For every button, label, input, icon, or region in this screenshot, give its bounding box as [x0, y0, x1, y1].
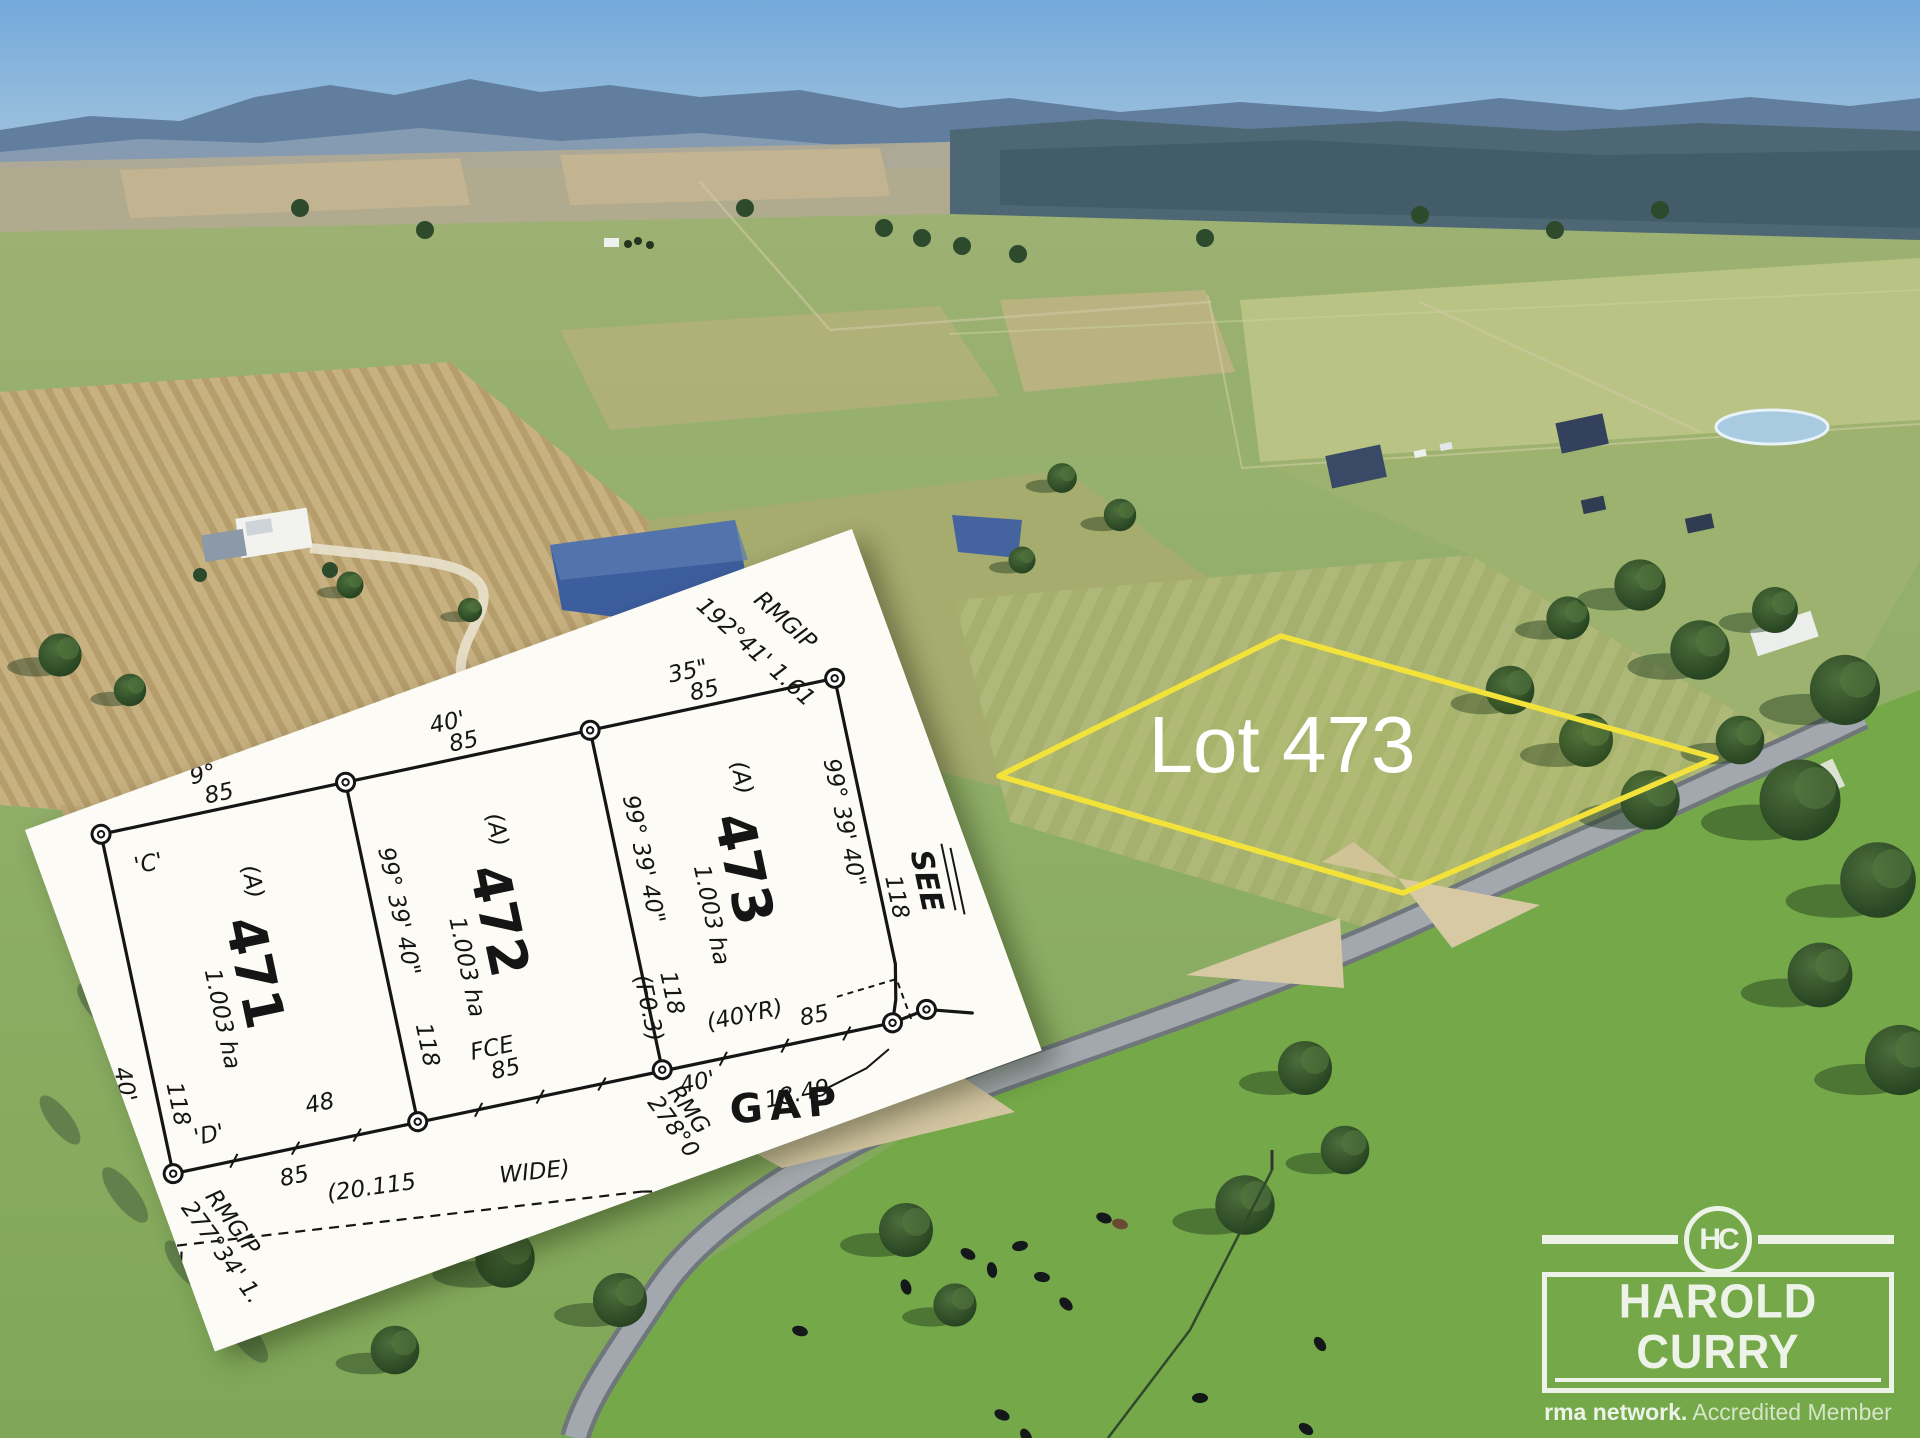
lot-code: (A) — [236, 863, 268, 901]
plan-length: 85 — [202, 778, 236, 810]
survey-mark — [163, 1163, 184, 1184]
plan-depth: 118 — [161, 1080, 196, 1128]
survey-mark — [90, 824, 111, 845]
tagline-member: Accredited Member — [1692, 1399, 1891, 1425]
logo-tagline: rma network. Accredited Member — [1542, 1399, 1894, 1426]
plan-road-width: (20.115 — [325, 1169, 417, 1207]
lot-code: (A) — [481, 811, 513, 849]
plan-road-width: WIDE) — [498, 1156, 571, 1189]
plan-corner-d: 'D' — [192, 1119, 227, 1151]
lot-note: 48 — [303, 1088, 337, 1120]
logo-namebox: HAROLD CURRY — [1542, 1272, 1894, 1394]
survey-mark — [579, 720, 600, 741]
plan-side-bearing: 99° 39' 40" — [818, 756, 871, 889]
lot-note: (40YR) — [704, 995, 785, 1036]
plan-length: 85 — [277, 1161, 311, 1193]
tagline-network: rma network. — [1544, 1399, 1687, 1425]
plan-length: 85 — [687, 675, 721, 707]
plan-depth: 118 — [410, 1021, 445, 1069]
hc-monogram-icon: HC — [1684, 1206, 1752, 1274]
survey-mark — [652, 1059, 673, 1080]
lot-note: 85 — [797, 1000, 831, 1032]
survey-mark — [916, 999, 937, 1020]
survey-mark — [824, 668, 845, 689]
plan-side-bearing: 99° 39' 40" — [617, 793, 670, 926]
plan-side-bearing: 99° 39' 40" — [372, 845, 425, 978]
listing-photo: Lot 473 RMGIP 192°41' 1.61 — [0, 0, 1920, 1438]
plan-lot-471: (A) 471 1.003 ha 48 — [179, 858, 337, 1135]
logo-bar — [1758, 1235, 1894, 1244]
survey-mark — [407, 1111, 428, 1132]
agency-name: HAROLD CURRY — [1555, 1275, 1881, 1377]
lot-code: (A) — [725, 759, 757, 797]
cow-icon — [1192, 1393, 1208, 1403]
survey-mark — [882, 1012, 903, 1033]
lot-note: 85 — [489, 1053, 523, 1085]
logo-bar — [1542, 1235, 1678, 1244]
survey-mark — [335, 772, 356, 793]
agency-logo: HC HAROLD CURRY rma network. Accredited … — [1542, 1206, 1894, 1427]
plan-length: 85 — [447, 726, 481, 758]
plan-corner-c: 'C' — [132, 848, 165, 879]
plan-lot-472: (A) 472 1.003 ha FCE 85 — [423, 810, 563, 1088]
plan-see-underline — [950, 848, 964, 915]
lot-label: Lot 473 — [1149, 700, 1416, 789]
